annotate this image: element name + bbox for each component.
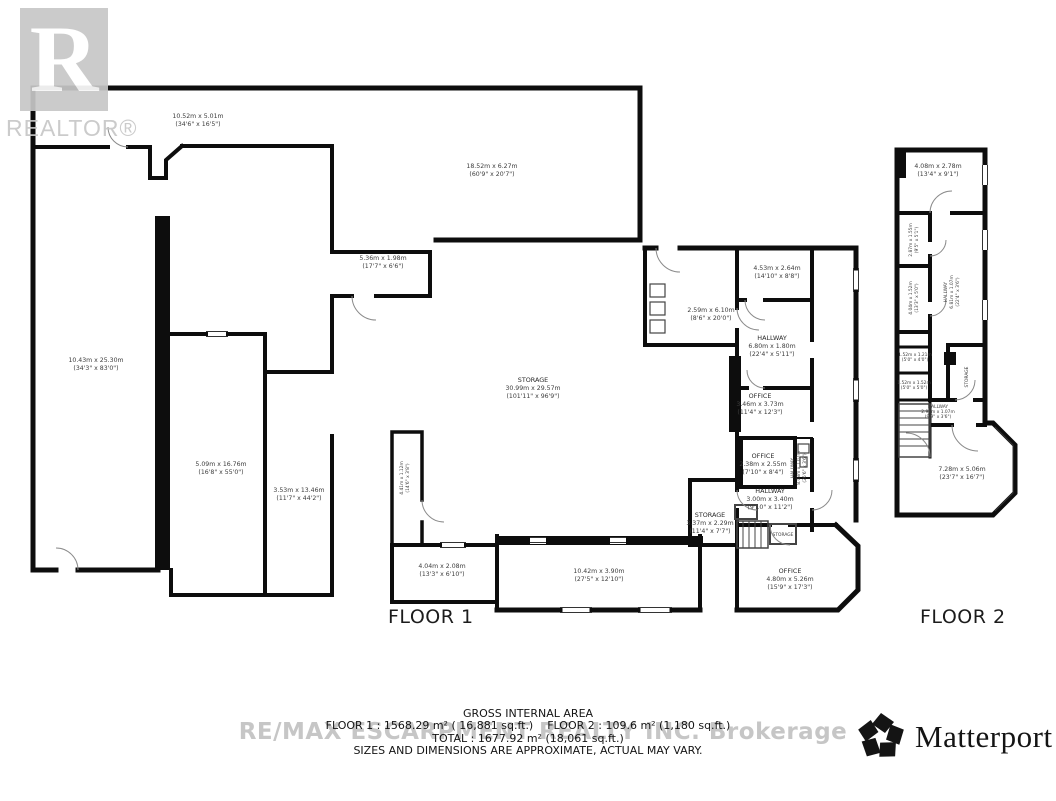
stall-fixture [650,302,665,315]
room-dim-label: 4.80m x 5.26m [766,576,813,583]
vertical-room-label: STORAGE [964,366,970,387]
room-dim-label: (15'9" x 17'3") [767,584,812,591]
room-dim-label: 4.53m x 2.64m [753,265,800,272]
room-dim-label: (14'10" x 8'8") [754,273,799,280]
floor1-area-text: FLOOR 1 : 1568.29 m² ( 16,881 sq.ft.) [326,719,534,732]
floorplan-canvas: R REALTOR® [0,0,1056,801]
room-name-label: OFFICE [749,392,772,400]
room-dim-label: (13'3" x 6'10") [419,571,464,578]
thick-wall [897,150,906,178]
room-dim-label: 3.00m x 3.40m [746,496,793,503]
vertical-room-label: HALLWAY 8.08m x 1.07m (26'6" x 3'6") [790,451,808,485]
room-dim-label: 2.87m x 1.55m [908,223,914,257]
room-dim-label: 10.52m x 5.01m [172,113,223,120]
room-name-label: HALLWAY [943,282,949,303]
door-arc [352,296,376,320]
room-dim-label: (34'3" x 83'0") [73,365,118,372]
realtor-logo-box: R [20,8,108,111]
room-dim-label: 4.04m x 1.52m [908,281,914,315]
room-dim-label: 3.37m x 2.29m [686,520,733,527]
room-dim-label: (7'10" x 8'4") [742,469,783,476]
room-dim-label: 4.08m x 2.78m [914,163,961,170]
room-dim-label: 4.04m x 2.08m [418,563,465,570]
door-arc [906,433,930,457]
stall-fixture [650,320,665,333]
room-dim-label: (26'6" x 3'6") [802,453,808,483]
matterport-pinwheel-icon [856,710,906,764]
room-dim-label: (11'7" x 44'2") [276,495,321,502]
door-arc [747,370,765,388]
room-name-label: STORAGE [773,532,794,538]
room-dim-label: (11'4" x 12'3") [737,409,782,416]
room-dim-label: 10.42m x 3.90m [573,568,624,575]
floor1-door-arcs [56,127,832,570]
thick-wall [729,356,741,432]
disclaimer-text: SIZES AND DIMENSIONS ARE APPROXIMATE, AC… [278,745,778,757]
wall [171,570,332,595]
door-arc [656,248,680,272]
room-name-label: HALLWAY [757,334,787,342]
matterport-logo: Matterport® [856,710,1056,764]
room-name-label: HALLWAY [755,487,785,495]
room-dim-label: 3.46m x 3.73m [736,401,783,408]
floor1-walls [33,88,858,610]
room-dim-label: (11'4" x 7'7") [689,528,730,535]
room-name-label: OFFICE [779,567,802,575]
realtor-watermark-logo: R REALTOR® [6,8,146,142]
room-name-label: STORAGE [518,376,548,384]
room-dim-label: 30.99m x 29.57m [505,385,560,392]
door-arc [422,500,444,522]
vertical-room-label: 4.04m x 1.52m (13'3" x 5'0") [908,281,920,315]
room-dim-label: 7.28m x 5.06m [938,466,985,473]
room-dim-label: 2.38m x 2.55m [739,461,786,468]
room-dim-label: 3.53m x 13.46m [273,487,324,494]
room-dim-label: (9'9" x 3'6") [925,414,952,420]
room-name-label: OFFICE [752,452,775,460]
thick-wall [497,536,703,545]
room-dim-label: 6.80m x 1.80m [748,343,795,350]
room-dim-label: (13'4" x 9'1") [917,171,958,178]
room-dim-label: (22'4" x 3'6") [955,277,961,307]
room-dim-label: (14'6" x 3'8") [405,463,411,493]
room-dim-label: (101'11" x 96'9") [506,393,559,400]
vertical-room-label: 4.41m x 1.12m (14'6" x 3'8") [399,461,411,495]
door-arc [812,490,832,510]
room-dim-label: (9'10" x 11'2") [747,504,792,511]
realtor-r-icon: R [30,8,99,111]
floor2-label: FLOOR 2 [920,606,1006,628]
thick-wall [155,216,170,570]
room-dim-label: (16'8" x 55'0") [198,469,243,476]
door-arc [952,425,978,451]
room-dim-label: (17'7" x 6'6") [362,263,403,270]
door-arc [56,548,78,570]
room-dim-label: (13'3" x 5'0") [914,283,920,313]
room-dim-label: (34'6" x 16'5") [175,121,220,128]
door-arc [930,191,952,213]
room-dim-label: 2.59m x 6.10m [687,307,734,314]
floorplan-drawing: 10.52m x 5.01m (34'6" x 16'5") 18.52m x … [0,0,1056,801]
room-dim-label: 6.81m x 1.07m [949,275,955,309]
room-name-label: STORAGE [964,366,970,387]
floor1-labels: 10.52m x 5.01m (34'6" x 16'5") 18.52m x … [68,113,813,591]
room-dim-label: 10.43m x 25.30m [68,357,123,364]
stall-fixture [650,284,665,297]
floor1-label: FLOOR 1 [388,606,474,628]
floor2-walls [897,150,1015,515]
floor2-area-text: FLOOR 2 : 109.6 m² (1,180 sq.ft.) [547,719,730,732]
vertical-room-label: 2.87m x 1.55m (9'5" x 5'1") [908,223,920,257]
floor2-fixtures [899,165,1013,511]
room-dim-label: (9'5" x 5'1") [914,226,920,253]
room-dim-label: (60'9" x 20'7") [469,171,514,178]
door-arc [745,300,765,320]
room-dim-label: 5.09m x 16.76m [195,461,246,468]
matterport-wordmark: Matterport [915,719,1053,755]
room-dim-label: (27'5" x 12'10") [574,576,623,583]
room-dim-label: (5'0" x 4'0") [902,357,929,363]
area-summary: GROSS INTERNAL AREA FLOOR 1 : 1568.29 m²… [278,708,778,757]
room-name-label: HALLWAY [790,458,796,479]
room-dim-label: (23'7" x 16'7") [939,474,984,481]
room-dim-label: 18.52m x 6.27m [466,163,517,170]
room-dim-label: 5.36m x 1.98m [359,255,406,262]
door-arc [930,240,946,256]
room-name-label: STORAGE [695,511,725,519]
room-dim-label: (5'0" x 5'0") [901,385,928,391]
area-summary-floors: FLOOR 1 : 1568.29 m² ( 16,881 sq.ft.)FLO… [278,720,778,732]
room-dim-label: 8.08m x 1.07m [796,451,802,485]
wall [150,146,182,178]
realtor-logo-text: REALTOR® [6,115,146,142]
room-dim-label: (8'6" x 20'0") [690,315,731,322]
room-dim-label: (22'4" x 5'11") [749,351,794,358]
room-dim-label: 4.41m x 1.12m [399,461,405,495]
